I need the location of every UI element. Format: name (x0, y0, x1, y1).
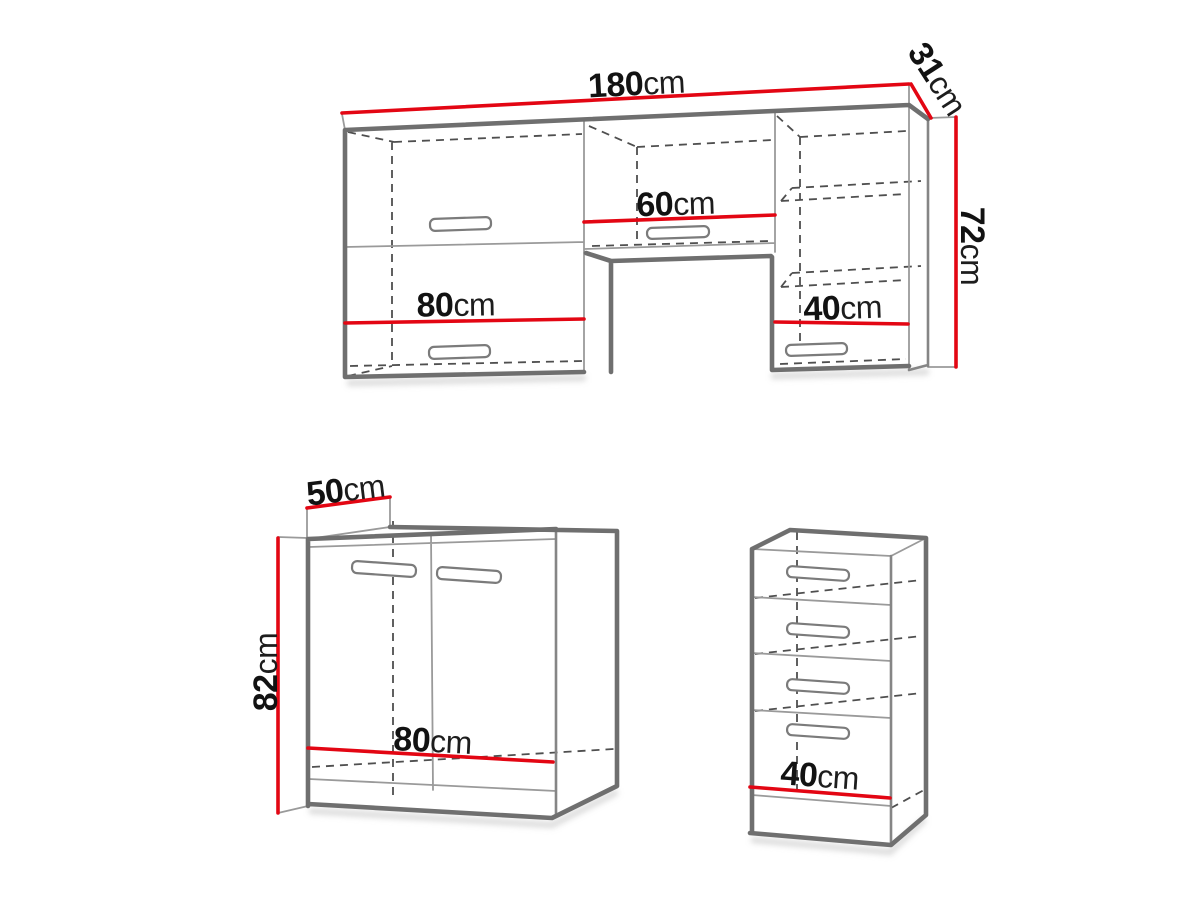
diagram-canvas: 180cm 31cm 72cm 80cm 60cm 40cm 50cm 82cm… (0, 0, 1200, 900)
wall-left-lower-door-handle (429, 345, 490, 359)
wall-left-section-label: 80cm (416, 285, 495, 324)
wall-unit: 180cm 31cm 72cm 80cm 60cm 40cm (342, 36, 991, 377)
diagram-page: 180cm 31cm 72cm 80cm 60cm 40cm 50cm 82cm… (0, 0, 1200, 900)
wall-right-section-label: 40cm (803, 288, 883, 329)
drawer-4-handle (787, 724, 850, 739)
wall-height-label: 72cm (953, 207, 991, 285)
base-cabinet-panel-lines (278, 497, 556, 813)
base-right-door-handle (437, 567, 502, 583)
wall-unit-side-edges (909, 119, 928, 370)
base-depth-label: 50cm (304, 466, 387, 513)
wall-width-label: 180cm (587, 63, 686, 106)
wall-middle-door-handle (647, 226, 709, 239)
wall-right-door-handle (786, 343, 847, 356)
base-cabinet: 50cm 82cm 80cm (247, 466, 617, 818)
drawer-cabinet: 40cm (750, 530, 926, 845)
drawer-width-label: 40cm (779, 754, 860, 797)
base-height-label: 82cm (247, 633, 285, 711)
wall-unit-outline (345, 105, 928, 377)
wall-middle-section-label: 60cm (636, 184, 716, 225)
base-width-label: 80cm (392, 720, 472, 762)
wall-left-upper-door-handle (430, 217, 491, 231)
base-left-door-handle (352, 561, 417, 577)
